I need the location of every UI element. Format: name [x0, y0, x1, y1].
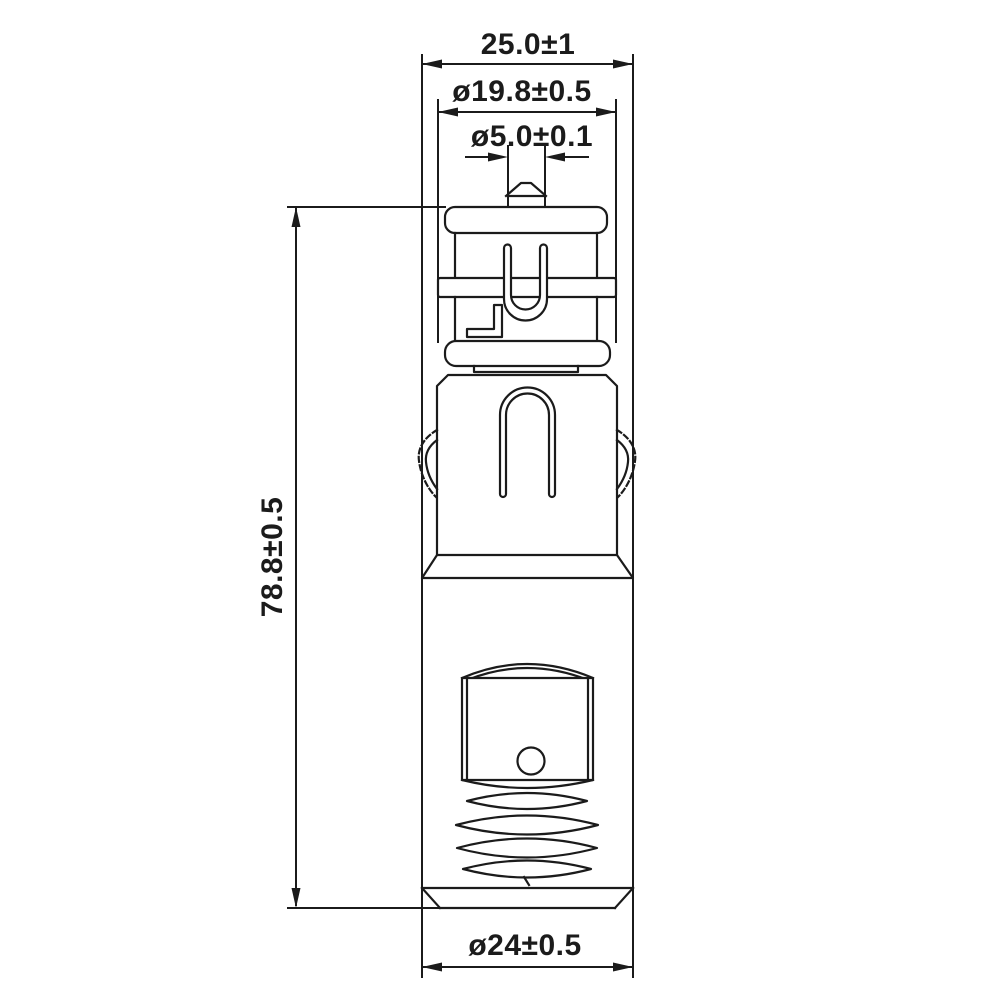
- side-clip-right-inner: [617, 440, 628, 489]
- part-top-cap: [445, 207, 607, 233]
- dim-body-label: ø24±0.5: [468, 929, 581, 962]
- spring-coil-3: [457, 839, 597, 858]
- plug-outline: [419, 183, 636, 908]
- body-bottom-chamfer-right: [615, 888, 633, 908]
- part-contact-band-lower: [445, 341, 610, 366]
- dim-tip-label: ø5.0±0.1: [471, 120, 593, 153]
- dim-overall-width-label: 25.0±1: [481, 28, 576, 61]
- part-body-bottom: [422, 888, 633, 908]
- part-rivet-hole: [518, 748, 545, 775]
- spring-coil-4: [463, 861, 591, 878]
- technical-drawing-canvas: 25.0±1 ø19.8±0.5 ø5.0±0.1 78.8±0.5 ø24±0…: [0, 0, 1002, 1002]
- part-label-plate: [462, 664, 593, 788]
- dim-tip-diameter: ø5.0±0.1: [466, 120, 593, 162]
- arrowhead-left-icon: [422, 963, 442, 972]
- body-bottom-chamfer-left: [422, 888, 440, 908]
- arrowhead-left-icon: [422, 60, 442, 69]
- dim-overall-length-label: 78.8±0.5: [256, 497, 289, 618]
- part-contact-band-upper: [438, 278, 616, 297]
- arrowhead-inward-left-icon: [545, 153, 565, 162]
- dim-body-diameter: ø24±0.5: [422, 929, 633, 972]
- dim-contact-band-diameter: ø19.8±0.5: [438, 75, 616, 117]
- arrowhead-right-icon: [596, 108, 616, 117]
- part-neck-upper: [455, 233, 597, 278]
- arrowhead-right-icon: [613, 60, 633, 69]
- spring-coil-1: [467, 793, 587, 809]
- arrowhead-right-icon: [613, 963, 633, 972]
- part-coil-spring: [456, 793, 598, 885]
- arrowhead-down-icon: [292, 888, 301, 908]
- dim-contact-band-label: ø19.8±0.5: [452, 75, 591, 108]
- part-upper-housing: [437, 375, 617, 555]
- part-shoulder: [422, 555, 633, 578]
- part-keyhole-slot: [500, 388, 555, 498]
- extension-lines: [288, 55, 633, 977]
- part-center-tip: [506, 183, 546, 196]
- side-clip-left-inner: [426, 440, 437, 489]
- spring-coil-2: [456, 816, 598, 835]
- arrowhead-up-icon: [292, 207, 301, 227]
- drawing-sheet: 25.0±1 ø19.8±0.5 ø5.0±0.1 78.8±0.5 ø24±0…: [0, 0, 1002, 1002]
- dim-overall-length: 78.8±0.5: [256, 207, 301, 908]
- dim-overall-width: 25.0±1: [422, 28, 633, 69]
- arrowhead-inward-right-icon: [488, 153, 508, 162]
- arrowhead-left-icon: [438, 108, 458, 117]
- tip-point-outline: [506, 183, 546, 196]
- part-bayonet-slot: [467, 305, 502, 337]
- plate-bottom-arc: [462, 780, 593, 788]
